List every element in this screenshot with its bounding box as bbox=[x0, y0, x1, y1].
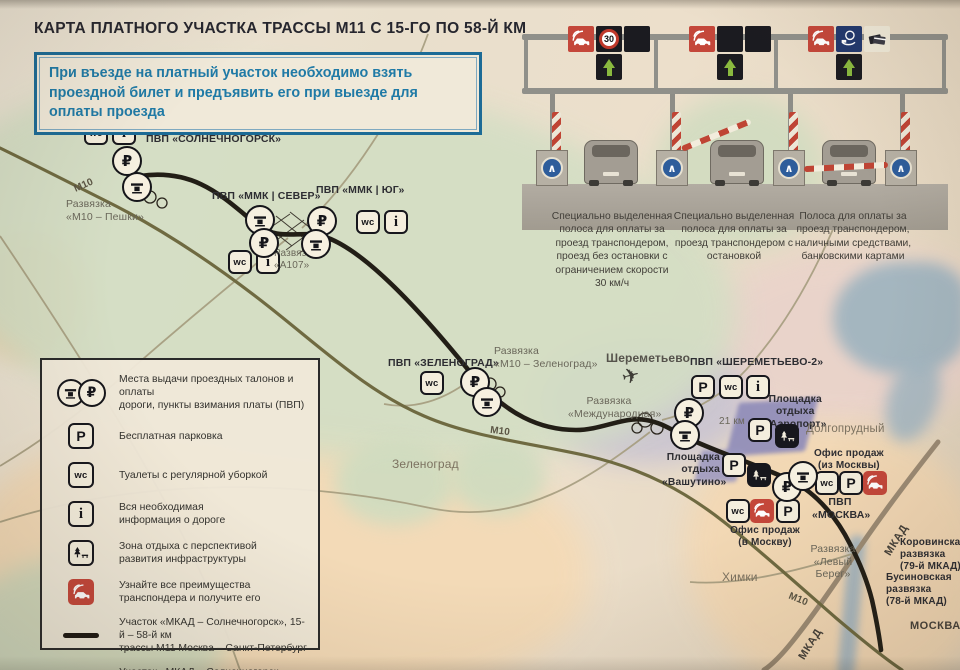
lane-sign-icon: ∧ bbox=[541, 157, 563, 179]
cash-payment-sign-icon bbox=[836, 26, 862, 52]
sheremetyevo-label: Шереметьево bbox=[606, 351, 690, 365]
toll-booth: ∧ bbox=[536, 150, 568, 186]
businovskaya-razvyazka-label: Бусиновская развязка (78-й МКАД) bbox=[886, 572, 952, 608]
blank-sign bbox=[717, 26, 743, 52]
toll-booth: ∧ bbox=[773, 150, 805, 186]
parking-icon: P bbox=[722, 453, 746, 477]
rest-area-icon bbox=[68, 540, 94, 566]
pvp-sheremetyevo2-label: ПВП «ШЕРЕМЕТЬЕВО-2» bbox=[690, 356, 823, 369]
lane-sign-icon: ∧ bbox=[778, 157, 800, 179]
wc-icon: wc bbox=[356, 210, 380, 234]
khimki-city-label: Химки bbox=[722, 570, 758, 584]
rest-area-vashutino-label: Площадка отдыха «Вашутино» bbox=[662, 452, 720, 489]
legend-item-transponder: Узнайте все преимущества транспондера и … bbox=[54, 577, 308, 607]
legend-item-info: i Вся необходимая информация о дороге bbox=[54, 499, 308, 529]
blank-sign bbox=[745, 26, 771, 52]
toll-booth-icon bbox=[301, 229, 331, 259]
ruble-toll-icon: ₽ bbox=[249, 228, 279, 258]
toll-booth: ∧ bbox=[885, 150, 917, 186]
legend-item-m11-line: Участок «МКАД – Солнечногорск», 15-й – 5… bbox=[54, 616, 308, 655]
sales-office-from-moscow-label: Офис продаж (из Москвы) bbox=[814, 448, 884, 472]
lane3-signs bbox=[808, 26, 890, 52]
razvyazka-peshki-label: Развязка «М10 – Пешки» bbox=[66, 198, 144, 223]
razvyazka-levy-bereg-label: Развязка «Левый Берег» bbox=[798, 543, 868, 581]
toll-booth: ∧ bbox=[656, 150, 688, 186]
bank-cards-sign-icon bbox=[864, 26, 890, 52]
parking-icon: P bbox=[691, 375, 715, 399]
ruble-toll-icon: ₽ bbox=[78, 379, 106, 407]
toll-road-map-photo: КАРТА ПЛАТНОГО УЧАСТКА ТРАССЫ М11 С 15-Г… bbox=[0, 0, 960, 670]
lane1-signs: 30 bbox=[568, 26, 650, 52]
legend-item-m10-line: Участок «МКАД – Солнечногорск», трассы М… bbox=[54, 664, 308, 670]
transponder-sign-icon bbox=[808, 26, 834, 52]
striped-pillar bbox=[789, 112, 798, 152]
striped-pillar bbox=[901, 112, 910, 152]
car-rear-view bbox=[710, 140, 764, 184]
gantry-beam-bottom bbox=[522, 88, 948, 94]
transponder-icon bbox=[68, 579, 94, 605]
parking-icon: P bbox=[839, 471, 863, 495]
pvp-mmk-yug-label: ПВП «ММК | ЮГ» bbox=[316, 184, 404, 197]
razvyazka-m10-zelenograd-label: Развязка «М10 – Зеленоград» bbox=[494, 345, 598, 370]
legend-item-wc: wc Туалеты с регулярной уборкой bbox=[54, 460, 308, 490]
speed-limit-value: 30 bbox=[599, 29, 619, 49]
parking-icon: P bbox=[748, 418, 772, 442]
gantry-post bbox=[774, 34, 778, 94]
wc-icon: wc bbox=[815, 471, 839, 495]
lane-sign-icon: ∧ bbox=[890, 157, 912, 179]
wc-icon: wc bbox=[719, 375, 743, 399]
korovinskaya-razvyazka-label: Коровинская развязка (79-й МКАД) bbox=[900, 537, 960, 573]
lane-sign-icon: ∧ bbox=[661, 157, 683, 179]
transponder-icon bbox=[863, 471, 887, 495]
m10-road-label: М10 bbox=[489, 425, 510, 439]
toll-booth-icon bbox=[122, 172, 152, 202]
notice-text: При въезде на платный участок необходимо… bbox=[49, 64, 467, 123]
toll-plaza-illustration: 30 bbox=[522, 12, 948, 284]
transponder-sign-icon bbox=[568, 26, 594, 52]
pvp-moskva-label: ПВП «МОСКВА» bbox=[812, 496, 868, 521]
toll-booth-icon bbox=[670, 420, 700, 450]
striped-pillar bbox=[672, 112, 681, 152]
lane2-signs bbox=[689, 26, 771, 52]
wc-icon: wc bbox=[726, 499, 750, 523]
m11-line-swatch bbox=[63, 633, 99, 638]
legend-box: ₽ Места выдачи проездных талонов и оплат… bbox=[40, 358, 320, 650]
distance-21km-label: 21 км bbox=[719, 416, 745, 428]
zelenograd-city-label: Зеленоград bbox=[392, 457, 459, 471]
rest-area-icon bbox=[747, 463, 771, 487]
page-title: КАРТА ПЛАТНОГО УЧАСТКА ТРАССЫ М11 С 15-Г… bbox=[34, 20, 526, 38]
lane2-caption: Специально выделенная полоса для оплаты … bbox=[672, 210, 796, 264]
car-rear-view bbox=[584, 140, 638, 184]
pvp-zelenograd-label: ПВП «ЗЕЛЕНОГРАД» bbox=[388, 357, 499, 370]
notice-box: При въезде на платный участок необходимо… bbox=[34, 52, 482, 135]
wc-icon: wc bbox=[68, 462, 94, 488]
gantry-post bbox=[654, 34, 658, 94]
sales-office-to-moscow-label: Офис продаж (в Москву) bbox=[730, 525, 800, 549]
moskva-city-label: МОСКВА bbox=[910, 620, 960, 633]
legend-item-parking: P Бесплатная парковка bbox=[54, 421, 308, 451]
toll-booth-icon bbox=[472, 387, 502, 417]
gantry-post bbox=[942, 34, 946, 94]
lane1-caption: Специально выделенная полоса для оплаты … bbox=[550, 210, 674, 290]
info-icon: i bbox=[384, 210, 408, 234]
rest-area-icon bbox=[775, 424, 799, 448]
wc-icon: wc bbox=[228, 250, 252, 274]
parking-icon: P bbox=[68, 423, 94, 449]
transponder-sign-icon bbox=[689, 26, 715, 52]
lane3-caption: Полоса для оплаты за проезд транспондеро… bbox=[794, 210, 912, 264]
lane-open-arrow-sign bbox=[596, 54, 622, 80]
legend-item-rest-area: Зона отдыха с перспективой развития инфр… bbox=[54, 538, 308, 568]
speed-limit-sign: 30 bbox=[596, 26, 622, 52]
blank-sign bbox=[624, 26, 650, 52]
legend-item-pvp: ₽ Места выдачи проездных талонов и оплат… bbox=[54, 373, 308, 412]
parking-icon: P bbox=[776, 499, 800, 523]
dolgoprudny-city-label: Долгопрудный bbox=[806, 423, 885, 437]
wc-icon: wc bbox=[420, 371, 444, 395]
transponder-icon bbox=[750, 499, 774, 523]
lane-open-arrow-sign bbox=[836, 54, 862, 80]
lane-open-arrow-sign bbox=[717, 54, 743, 80]
info-icon: i bbox=[68, 501, 94, 527]
pvp-mmk-sever-label: ПВП «ММК | СЕВЕР» bbox=[212, 190, 321, 203]
razvyazka-mezhdunarodnaya-label: Развязка «Международная» bbox=[568, 395, 650, 420]
striped-pillar bbox=[552, 112, 561, 152]
toll-booth-icon bbox=[788, 461, 818, 491]
gantry-post bbox=[524, 34, 528, 94]
